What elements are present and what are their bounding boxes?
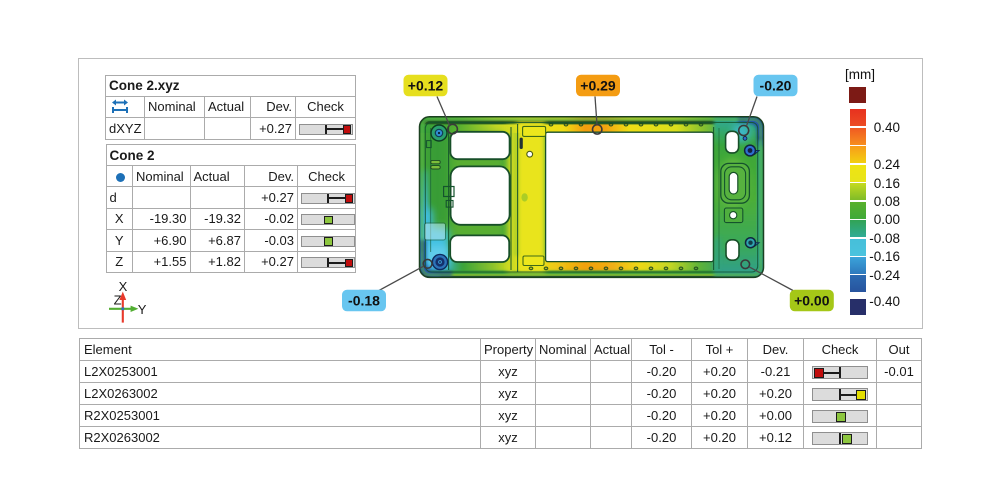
svg-text:+0.00: +0.00 [794, 292, 830, 308]
svg-text:-0.20: -0.20 [760, 77, 792, 93]
svg-text:Y: Y [138, 302, 147, 317]
svg-text:+0.29: +0.29 [580, 77, 616, 93]
svg-text:+0.12: +0.12 [408, 77, 444, 93]
svg-text:-0.18: -0.18 [348, 292, 380, 308]
